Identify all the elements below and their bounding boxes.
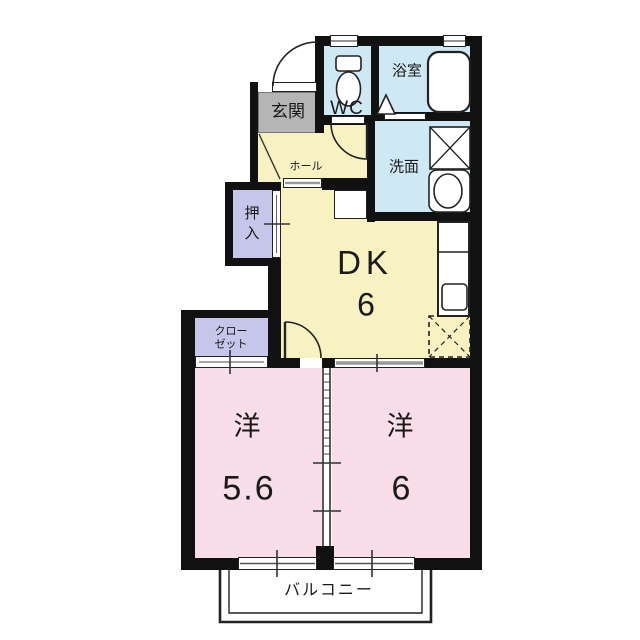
wall-oshiire-bottom xyxy=(225,258,281,266)
entry-door-threshold xyxy=(272,82,317,92)
wall-dk-bottom-a xyxy=(268,358,300,368)
wall-bottom xyxy=(181,558,482,570)
wall-entry-left xyxy=(250,82,258,182)
balcony-label: バルコニー xyxy=(284,582,374,600)
window-balcony-left xyxy=(238,557,317,570)
bath-door-opening xyxy=(384,113,426,120)
closet-label: クロー ゼット xyxy=(215,325,248,350)
wall-wc-bath xyxy=(371,46,379,121)
dk-western6-opening xyxy=(334,358,425,368)
wall-closet-top xyxy=(181,310,281,318)
wall-left-lower xyxy=(181,310,195,558)
closet-label-line1: クロー xyxy=(215,325,248,338)
western2-label: 洋 xyxy=(387,411,414,442)
oshiire-label-line1: 押 xyxy=(244,204,259,224)
wall-oshiire-left xyxy=(225,182,233,266)
western1-size-label: 5.6 xyxy=(222,469,275,508)
closet-sliding-door xyxy=(195,356,268,368)
wall-dk-bottom-stub xyxy=(322,358,334,368)
room-western-6 xyxy=(332,368,470,558)
window-balcony-right xyxy=(333,557,415,570)
floor-plan: 玄関 WC 浴室 洗面 ホール 押 入 クロー ゼット DK 6 洋 5.6 洋… xyxy=(0,0,640,640)
closet-label-line2: ゼット xyxy=(215,338,248,351)
oshiire-sliding-door xyxy=(272,190,281,258)
entry-door-arc xyxy=(273,42,317,86)
wall-dk-left xyxy=(268,258,281,368)
wall-hall-stub xyxy=(322,178,367,190)
genkan-label: 玄関 xyxy=(271,102,305,122)
wall-washroom-left xyxy=(367,121,375,222)
hall-dk-opening xyxy=(283,178,322,188)
western2-size-label: 6 xyxy=(392,469,413,508)
window-top-wc xyxy=(330,35,358,47)
oshiire-label-line2: 入 xyxy=(244,224,259,244)
bath-label: 浴室 xyxy=(392,62,422,79)
room-western-5-6 xyxy=(195,368,322,558)
hall-label: ホール xyxy=(290,161,323,174)
wall-dk-bottom-b xyxy=(425,358,482,368)
pipe-space-box xyxy=(334,190,367,219)
wc-label: WC xyxy=(330,98,364,120)
dk-label: DK xyxy=(337,244,393,282)
wall-oshiire-top xyxy=(225,182,281,190)
window-top-bath xyxy=(443,35,466,47)
western1-label: 洋 xyxy=(234,411,261,442)
kitchen-counter xyxy=(437,221,470,317)
partition-hatch xyxy=(323,374,330,454)
wall-partition-foot xyxy=(316,546,334,558)
dk-size-label: 6 xyxy=(357,287,375,324)
oshiire-label: 押 入 xyxy=(244,204,259,245)
wall-washroom-bottom xyxy=(367,212,482,221)
washroom-label: 洗面 xyxy=(389,158,419,175)
